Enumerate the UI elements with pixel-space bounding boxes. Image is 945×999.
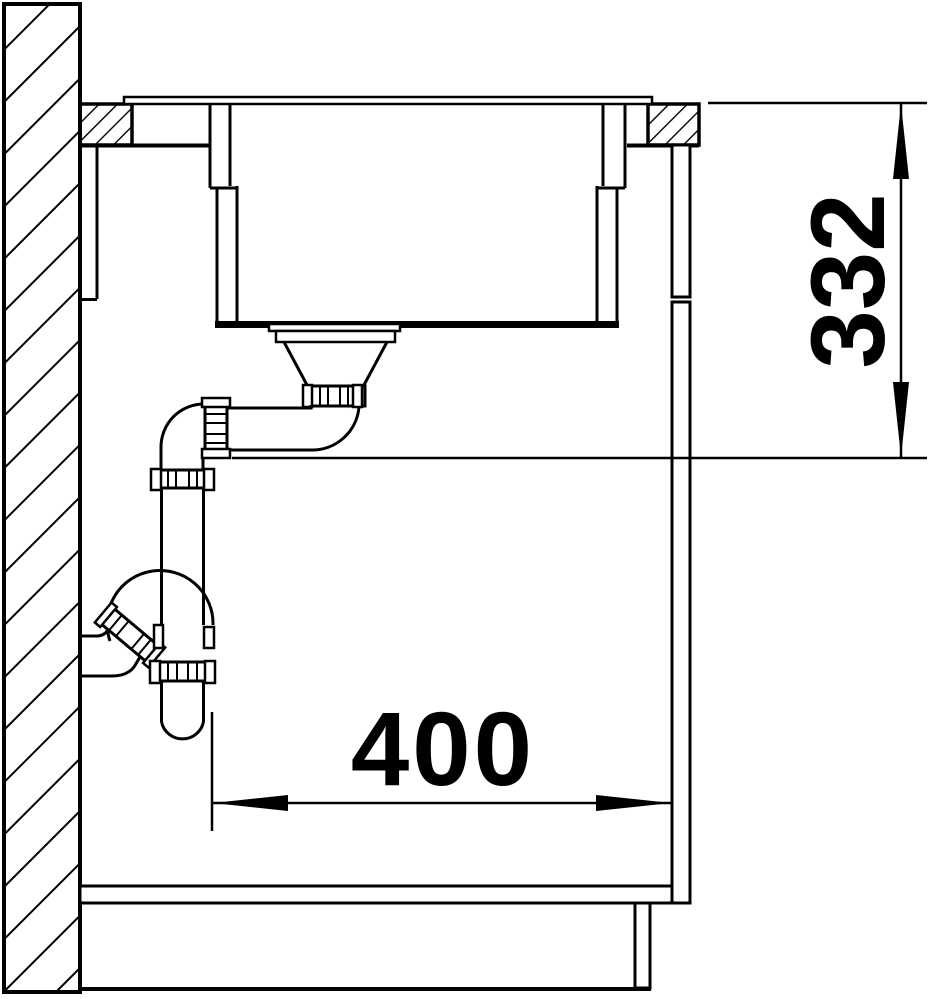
wall-outlet-bottom	[81, 657, 140, 676]
cabinet-side-panel-lower	[672, 302, 690, 903]
dim-332-arrow-up	[893, 104, 909, 179]
elbow-outer-curve	[161, 404, 204, 447]
dim-400-arrow-left	[213, 795, 288, 811]
bowl-left-wall	[210, 104, 237, 323]
trap-thread-tab-left	[154, 625, 163, 648]
pipe-top-edge	[227, 405, 311, 408]
strainer-taper	[284, 342, 387, 385]
strainer-nut-cap-right	[353, 385, 362, 407]
cabinet-back-rail	[81, 146, 97, 300]
cabinet-bottom-shelf	[80, 886, 672, 903]
drain-pipe-upper	[151, 398, 359, 625]
cabinet-side-panel-upper	[672, 145, 690, 297]
dim-400-label: 400	[351, 691, 535, 808]
trap-cup-nut	[150, 661, 215, 683]
elbow-union-nut	[202, 398, 230, 458]
sink-flange	[124, 97, 652, 104]
dim-332-label: 332	[790, 193, 907, 368]
strainer-nut-cap-left	[303, 385, 312, 407]
cabinet-plinth	[635, 903, 650, 988]
drawing-canvas: 332 400	[0, 0, 945, 999]
vertical-pipe	[162, 488, 204, 625]
wall-section	[4, 4, 80, 992]
countertop-left-block	[80, 104, 132, 145]
strainer-body	[276, 331, 395, 342]
elbow-down-edges	[161, 447, 203, 470]
dim-332-arrow-down	[893, 382, 909, 457]
sink-bowl	[124, 97, 652, 325]
pipe-bottom-edge	[227, 407, 359, 450]
dim-400-arrow-right	[596, 795, 671, 811]
countertop-right-block	[648, 104, 699, 145]
bowl-right-wall	[597, 104, 625, 323]
sink-installation-drawing: 332 400	[0, 0, 945, 999]
countertop	[80, 104, 699, 146]
pipe-coupling-nut	[151, 469, 214, 490]
siphon-trap	[81, 570, 215, 738]
drain-strainer	[269, 324, 400, 407]
trap-thread-tab-right	[204, 627, 214, 648]
trap-cup	[162, 681, 204, 739]
dimension-400: 400	[212, 691, 671, 831]
